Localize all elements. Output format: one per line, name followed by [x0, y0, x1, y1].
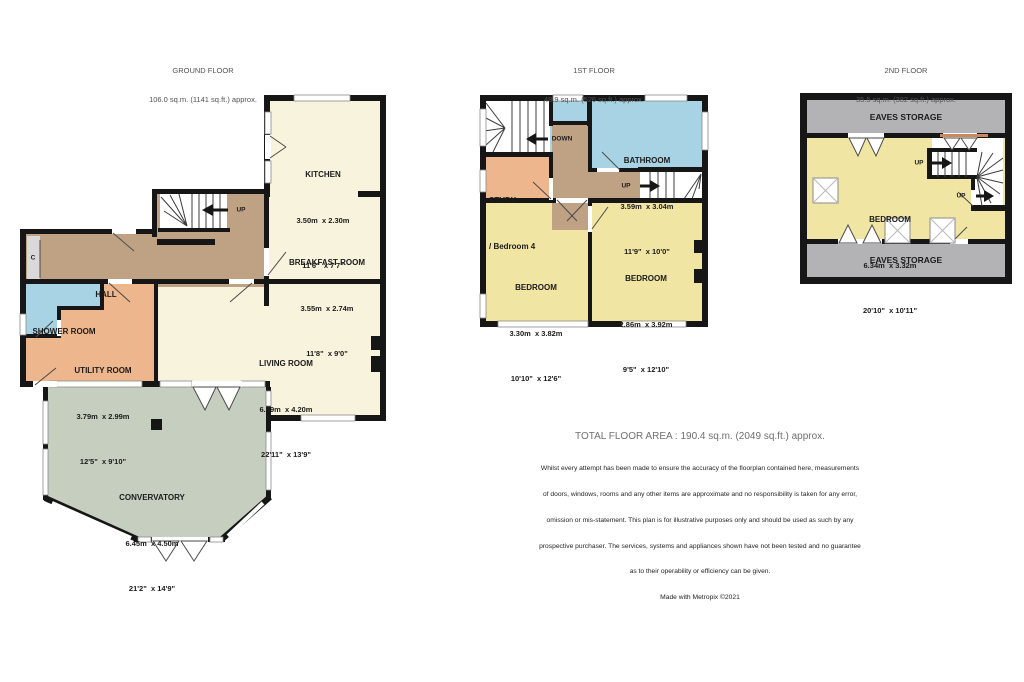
second-floor-header: 2ND FLOOR 35.5 sq.m. (382 sq.ft.) approx…: [856, 47, 956, 114]
floor-title: 1ST FLOOR: [544, 66, 644, 76]
floor-title: 2ND FLOOR: [856, 66, 956, 76]
room-dims-imperial: 20'10" x 10'11": [863, 306, 917, 316]
floor-subtitle: 106.0 sq.m. (1141 sq.ft.) approx.: [149, 95, 257, 105]
room-dims-imperial: 10'10" x 12'6": [510, 374, 563, 384]
stair-rail: [940, 134, 988, 137]
room-label-bedroom-right: BEDROOM 2.86m x 3.92m 9'5" x 12'10": [620, 238, 673, 393]
room-name: CONVERVATORY: [119, 493, 185, 503]
room-dims-metric: 6.45m x 4.50m: [119, 539, 185, 549]
disclaimer: Whilst every attempt has been made to en…: [539, 448, 861, 611]
closet-label: C: [31, 255, 36, 262]
room-label-eaves-storage-bottom: EAVES STORAGE: [870, 255, 942, 265]
room-dims-metric: 3.59m x 3.04m: [621, 202, 674, 212]
room-label-bedroom-left: BEDROOM 3.30m x 3.82m 10'10" x 12'6": [510, 247, 563, 402]
room-label-conservatory: CONVERVATORY 6.45m x 4.50m 21'2" x 14'9": [119, 457, 185, 612]
first-floor-header: 1ST FLOOR 48.9 sq.m. (526 sq.ft.) approx…: [544, 47, 644, 114]
room-name: UTILITY ROOM: [74, 366, 131, 376]
floor-title: GROUND FLOOR: [149, 66, 257, 76]
room-dims-metric: 3.79m x 2.99m: [74, 412, 131, 422]
floorplan-page: { "palette": { "wall": "#161616", "cream…: [0, 0, 1024, 682]
first-up-label: UP: [621, 183, 630, 190]
room-dims-metric: 3.30m x 3.82m: [510, 329, 563, 339]
disclaimer-line: Made with Metropix ©2021: [539, 594, 861, 603]
room-name: BEDROOM: [620, 274, 673, 284]
floor-subtitle: 35.5 sq.m. (382 sq.ft.) approx.: [856, 95, 956, 105]
room-label-eaves-storage-top: EAVES STORAGE: [870, 112, 942, 122]
disclaimer-line: Whilst every attempt has been made to en…: [539, 465, 861, 474]
room-name: BREAKFAST ROOM: [289, 258, 365, 268]
room-dims-imperial: 21'2" x 14'9": [119, 584, 185, 594]
disclaimer-line: of doors, windows, rooms and any other i…: [539, 491, 861, 500]
disclaimer-line: prospective purchaser. The services, sys…: [539, 543, 861, 552]
first-down-label: DOWN: [552, 136, 573, 143]
room-name: STUDY: [489, 196, 535, 206]
room-name: BEDROOM: [863, 215, 917, 225]
room-dims-imperial: 22'11" x 13'9": [259, 450, 313, 460]
room-name: HALL: [95, 290, 116, 300]
room-name: BATHROOM: [621, 156, 674, 166]
ground-floor-header: GROUND FLOOR 106.0 sq.m. (1141 sq.ft.) a…: [149, 47, 257, 114]
room-name: LIVING ROOM: [259, 359, 313, 369]
room-name: BEDROOM: [510, 283, 563, 293]
total-floor-area: TOTAL FLOOR AREA : 190.4 sq.m. (2049 sq.…: [575, 431, 825, 442]
room-label-living-room: LIVING ROOM 6.99m x 4.20m 22'11" x 13'9": [259, 323, 313, 478]
conservatory-marker: [151, 419, 162, 430]
disclaimer-line: omission or mis-statement. This plan is …: [539, 517, 861, 526]
second-up-label-upper: UP: [914, 160, 923, 167]
disclaimer-line: as to their operability or efficiency ca…: [539, 568, 861, 577]
second-up-label-lower: UP: [956, 193, 965, 200]
room-label-hall: HALL: [95, 254, 116, 318]
floor-subtitle: 48.9 sq.m. (526 sq.ft.) approx.: [544, 95, 644, 105]
room-dims-metric: 6.99m x 4.20m: [259, 405, 313, 415]
room-dims-imperial: 9'5" x 12'10": [620, 365, 673, 375]
room-dims-metric: 2.86m x 3.92m: [620, 320, 673, 330]
ground-up-label: UP: [236, 207, 245, 214]
room-dims-metric: 3.55m x 2.74m: [289, 304, 365, 314]
room-name: KITCHEN: [297, 170, 350, 180]
